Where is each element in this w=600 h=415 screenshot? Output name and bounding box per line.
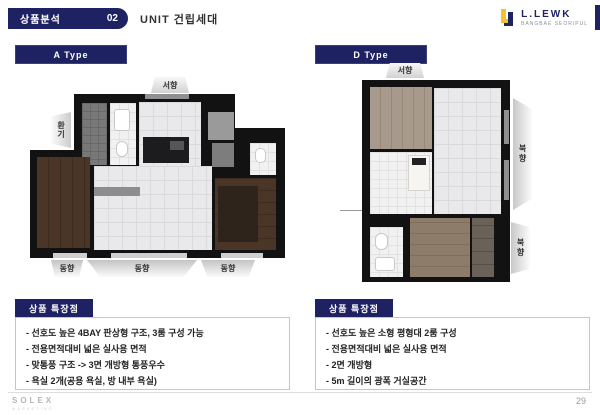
sofa (94, 187, 140, 196)
toilet (116, 141, 128, 157)
a-feature-item: - 맞통풍 구조 -> 3면 개방형 통풍우수 (26, 357, 279, 373)
page-title: UNIT 건립세대 (140, 11, 218, 27)
d-feature-item: - 선호도 높은 소형 평형대 2룸 구성 (326, 325, 579, 341)
a-room-kitchen (139, 102, 201, 166)
a-room-bathroom-second (250, 143, 276, 175)
d-direction-flag-west: 서향 (386, 63, 424, 78)
a-features-title: 상품 특장점 (15, 299, 93, 317)
bathtub (114, 109, 130, 131)
a-balcony (208, 112, 234, 140)
d-room-bathroom (370, 227, 403, 277)
a-window-top (145, 94, 189, 99)
d-type-floorplan: 서향 북향 북향 (315, 60, 555, 292)
d-wardrobe (472, 218, 494, 277)
d-room-kitchen (370, 152, 432, 214)
a-room-bedroom-right (215, 178, 276, 250)
d-room-bedroom-top (370, 87, 432, 149)
d-feature-item: - 2면 개방형 (326, 357, 579, 373)
a-features-box: - 선호도 높은 4BAY 판상형 구조, 3룸 구성 가능 - 전용면적대비 … (15, 317, 290, 390)
brand-logo: L.LEWK BANGBAE SEORIPUL (500, 8, 588, 27)
a-direction-flag-east-1: 동향 (51, 260, 83, 277)
footer-divider (8, 392, 592, 393)
corner-accent (595, 5, 600, 30)
d-feature-item: - 5m 길이의 광폭 거실공간 (326, 373, 579, 389)
footer-brand: SOLEX (12, 396, 54, 405)
brand-name: L.LEWK (521, 9, 588, 20)
d-features-box: - 선호도 높은 소형 평형대 2룸 구성 - 전용면적대비 넓은 실사용 면적… (315, 317, 590, 390)
toilet (255, 148, 266, 163)
a-type-floorplan: 서향 환기 (15, 70, 295, 290)
section-label: 상품분석 (20, 11, 61, 26)
a-direction-flag-east-3: 동향 (201, 260, 255, 277)
shower (375, 257, 395, 271)
a-room-bedroom-left (37, 157, 90, 248)
bed (218, 186, 258, 242)
slide: 상품분석 02 UNIT 건립세대 L.LEWK BANGBAE SEORIPU… (0, 0, 600, 415)
a-direction-flag-east-2: 동향 (87, 260, 197, 277)
kitchen-sink (170, 141, 184, 150)
a-window-bottom-1 (53, 253, 87, 258)
a-room-entry (82, 103, 107, 165)
toilet (375, 233, 388, 250)
a-direction-flag-vent: 환기 (51, 112, 71, 148)
d-direction-flag-north-2: 북향 (511, 222, 530, 274)
a-feature-item: - 욕실 2개(공용 욕실, 방 내부 욕실) (26, 373, 279, 389)
a-window-bottom-2 (111, 253, 187, 258)
page-number: 29 (576, 396, 586, 406)
a-type-label: A Type (15, 45, 127, 64)
d-room-bedroom-bottom (410, 218, 470, 277)
d-window-right-1 (504, 110, 509, 144)
brand-logo-icon (500, 8, 516, 27)
a-window-bottom-3 (221, 253, 263, 258)
d-room-living (434, 88, 501, 214)
d-direction-flag-north-1: 북향 (513, 98, 532, 210)
section-number: 02 (107, 13, 118, 24)
kitchen-counter (143, 137, 189, 163)
kitchen-island (408, 155, 430, 191)
d-pipe-line (340, 210, 362, 211)
cooktop (412, 158, 426, 165)
d-feature-item: - 전용면적대비 넓은 실사용 면적 (326, 341, 579, 357)
a-direction-flag-west: 서향 (151, 77, 189, 93)
brand-subtitle: BANGBAE SEORIPUL (521, 21, 588, 27)
d-window-right-2 (504, 160, 509, 200)
d-features-title: 상품 특장점 (315, 299, 393, 317)
a-utility (212, 143, 234, 167)
a-room-bathroom-main (110, 103, 136, 165)
footer-brand-subtitle: MARKETING (12, 406, 54, 411)
a-feature-item: - 전용면적대비 넓은 실사용 면적 (26, 341, 279, 357)
a-room-living (94, 166, 212, 250)
section-header: 상품분석 02 (8, 8, 128, 29)
a-feature-item: - 선호도 높은 4BAY 판상형 구조, 3룸 구성 가능 (26, 325, 279, 341)
